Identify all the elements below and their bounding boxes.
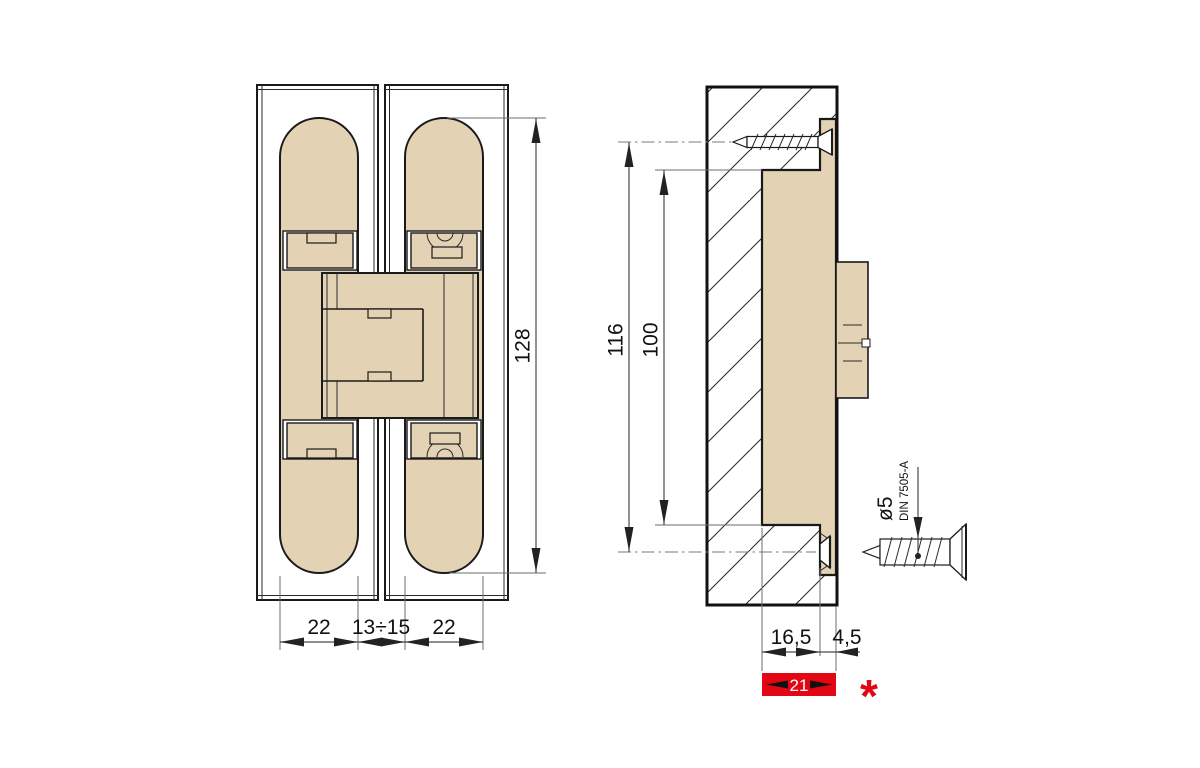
hinge-technical-drawing: 128 22 13÷15 22: [0, 0, 1200, 768]
dim-body-length: 100: [640, 322, 663, 357]
screw-diameter-label: ø5: [874, 496, 897, 521]
screw-standard-label: DIN 7505-A: [899, 461, 911, 521]
linkage-block-side: [836, 262, 870, 398]
drawing-canvas: 128 22 13÷15 22: [0, 0, 1200, 768]
dim-screw-spacing: 116: [605, 323, 628, 356]
dim-center-gap: 13÷15: [352, 616, 410, 639]
dim-mortise-depth: 16,5: [771, 626, 812, 649]
dim-face-offset: 4,5: [832, 626, 861, 649]
highlighted-total-depth: 21: [762, 673, 836, 696]
footnote-asterisk: *: [860, 670, 878, 722]
hinge-body-section: [762, 119, 836, 575]
dim-body-width-right: 22: [432, 616, 455, 639]
dim-total-depth: 21: [790, 676, 809, 695]
dim-total-length: 128: [512, 328, 535, 363]
dim-body-width-left: 22: [307, 616, 330, 639]
hinge-linkage: [322, 273, 478, 418]
background: [0, 0, 1200, 768]
